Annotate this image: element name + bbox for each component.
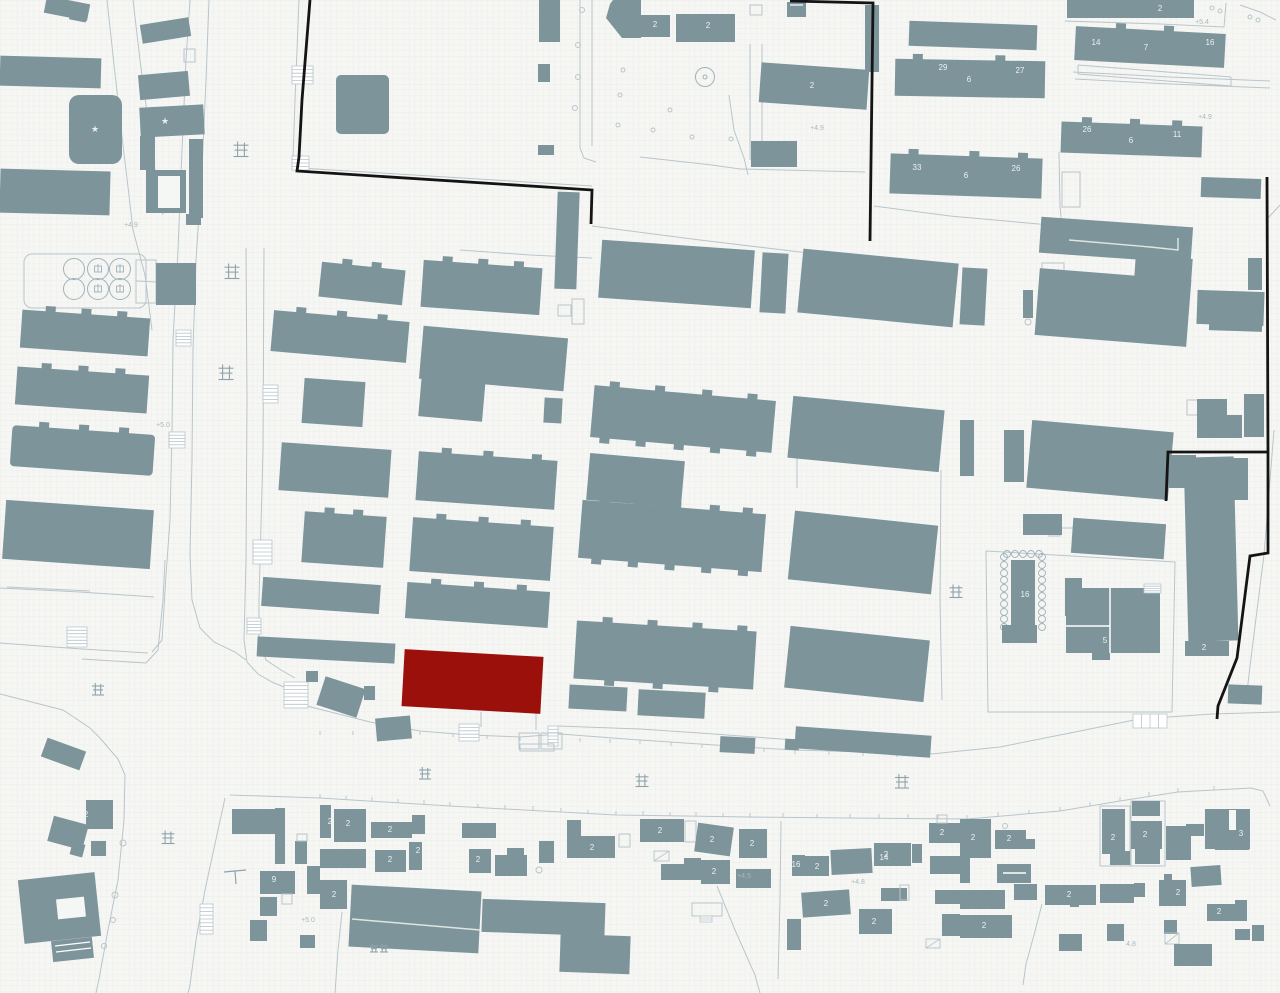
svg-text:11: 11 bbox=[1173, 130, 1182, 139]
svg-text:+4.8: +4.8 bbox=[851, 879, 865, 886]
svg-text:2: 2 bbox=[476, 855, 481, 864]
svg-text:+4.9: +4.9 bbox=[810, 125, 824, 132]
svg-text:9: 9 bbox=[272, 875, 277, 884]
svg-text:2: 2 bbox=[1111, 833, 1116, 842]
svg-text:2: 2 bbox=[1007, 834, 1012, 843]
svg-text:2: 2 bbox=[653, 20, 658, 29]
svg-text:+5.0: +5.0 bbox=[301, 917, 315, 924]
svg-text:6: 6 bbox=[1129, 136, 1134, 145]
svg-text:+5.0: +5.0 bbox=[156, 422, 170, 429]
svg-text:+5.4: +5.4 bbox=[1195, 19, 1209, 26]
svg-text:2: 2 bbox=[388, 855, 393, 864]
svg-text:14: 14 bbox=[880, 853, 889, 862]
svg-text:2: 2 bbox=[810, 81, 815, 90]
svg-text:6: 6 bbox=[967, 75, 972, 84]
svg-text:2: 2 bbox=[710, 835, 715, 844]
svg-text:26: 26 bbox=[1083, 125, 1092, 134]
svg-text:2: 2 bbox=[971, 833, 976, 842]
svg-text:33: 33 bbox=[913, 163, 922, 172]
svg-text:2: 2 bbox=[1202, 643, 1207, 652]
svg-text:2: 2 bbox=[872, 917, 877, 926]
svg-text:6: 6 bbox=[964, 171, 969, 180]
svg-text:27: 27 bbox=[1016, 66, 1025, 75]
svg-text:16: 16 bbox=[1206, 38, 1215, 47]
svg-text:2: 2 bbox=[1265, 757, 1270, 766]
svg-text:2: 2 bbox=[982, 921, 987, 930]
svg-text:2: 2 bbox=[658, 826, 663, 835]
svg-text:2: 2 bbox=[1158, 4, 1163, 13]
svg-text:★: ★ bbox=[161, 116, 169, 126]
svg-text:2: 2 bbox=[815, 862, 820, 871]
svg-text:2: 2 bbox=[346, 819, 351, 828]
svg-text:2: 2 bbox=[388, 825, 393, 834]
svg-text:2: 2 bbox=[590, 843, 595, 852]
svg-text:5: 5 bbox=[1103, 636, 1108, 645]
svg-text:2: 2 bbox=[712, 867, 717, 876]
svg-text:7: 7 bbox=[1144, 43, 1149, 52]
svg-text:+4.5: +4.5 bbox=[737, 873, 751, 880]
svg-text:+4.9: +4.9 bbox=[124, 222, 138, 229]
svg-text:16: 16 bbox=[792, 860, 801, 869]
svg-text:2: 2 bbox=[1176, 888, 1181, 897]
svg-text:2: 2 bbox=[706, 21, 711, 30]
svg-text:2: 2 bbox=[1217, 907, 1222, 916]
svg-text:2: 2 bbox=[84, 810, 89, 819]
svg-text:2: 2 bbox=[1143, 830, 1148, 839]
svg-text:29: 29 bbox=[939, 63, 948, 72]
svg-text:4.8: 4.8 bbox=[1126, 941, 1136, 948]
svg-text:26: 26 bbox=[1012, 164, 1021, 173]
svg-text:2: 2 bbox=[940, 828, 945, 837]
svg-text:+4.9: +4.9 bbox=[1198, 114, 1212, 121]
svg-text:2: 2 bbox=[750, 839, 755, 848]
svg-text:16: 16 bbox=[1021, 590, 1030, 599]
svg-text:2: 2 bbox=[332, 890, 337, 899]
svg-text:2: 2 bbox=[824, 899, 829, 908]
svg-text:★: ★ bbox=[91, 124, 99, 134]
svg-text:2: 2 bbox=[328, 817, 333, 826]
svg-text:14: 14 bbox=[1092, 38, 1101, 47]
svg-text:2: 2 bbox=[416, 846, 421, 855]
svg-text:3: 3 bbox=[1239, 829, 1244, 838]
svg-text:2: 2 bbox=[1067, 890, 1072, 899]
